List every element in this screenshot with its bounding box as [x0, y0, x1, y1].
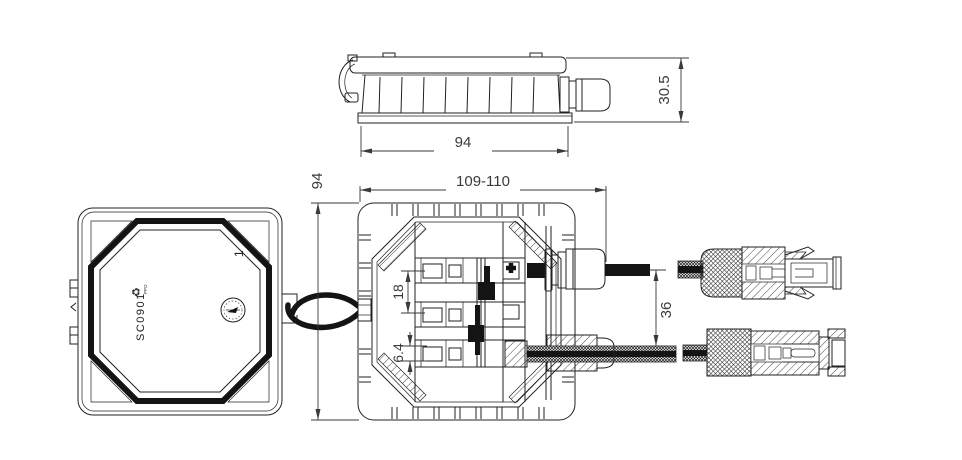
gasket-ring: [91, 221, 269, 401]
side-view-base: [358, 113, 572, 123]
cavity-number-marking: 1: [232, 250, 246, 257]
top-view-gland-upper: [527, 249, 650, 291]
side-view-lid: [350, 57, 566, 73]
terminal-rail-2: [415, 302, 525, 327]
bottom-view-outline: [78, 208, 282, 415]
dim-terminal-pitch: 18: [390, 271, 425, 313]
dim-label-top-width: 109-110: [456, 173, 510, 190]
bottom-view: SC0901 ♻ PPO 1: [70, 208, 297, 415]
dim-side-height: 30.5: [566, 58, 689, 122]
dim-cable-spacing: 36: [649, 270, 675, 346]
dim-side-width: 94: [361, 126, 568, 157]
dim-label-side-height: 30.5: [656, 75, 673, 104]
dim-label-cable-diameter: 6.4: [390, 343, 406, 363]
side-view-body: [362, 75, 560, 113]
date-stamp: [221, 298, 245, 322]
bottom-view-clips: [70, 280, 78, 344]
side-view-hook: [339, 55, 358, 102]
top-view-outline: [358, 203, 575, 420]
wire-loop: [288, 295, 360, 327]
dim-label-side-width: 94: [455, 134, 472, 151]
side-view-cable-gland: [560, 77, 610, 112]
top-view-gland-lower: [505, 335, 676, 371]
output-cable-upper: [605, 264, 650, 276]
mc4-female-connector: [678, 247, 841, 299]
terminal-rail-1: [415, 258, 525, 283]
loop-clip: [358, 299, 371, 321]
strain-relief: [505, 341, 527, 367]
material-marking: PPO: [143, 284, 148, 294]
dim-label-terminal-pitch: 18: [390, 284, 406, 300]
dim-label-cable-spacing: 36: [658, 302, 675, 319]
recycle-icon: ♻: [131, 287, 143, 297]
mc4-male-connector: [683, 329, 845, 376]
part-number-marking: SC0901: [135, 292, 147, 341]
top-view: 109-110 94 18 6.4 36: [309, 173, 676, 420]
drawing-canvas: 94 30.5 SC0901 ♻ PPO 1: [0, 0, 962, 460]
side-view: 94 30.5: [339, 53, 689, 157]
dim-label-top-height: 94: [309, 173, 326, 190]
polarity-plus-mark: [506, 263, 516, 273]
junction-box-drawing: 94 30.5 SC0901 ♻ PPO 1: [0, 0, 962, 460]
